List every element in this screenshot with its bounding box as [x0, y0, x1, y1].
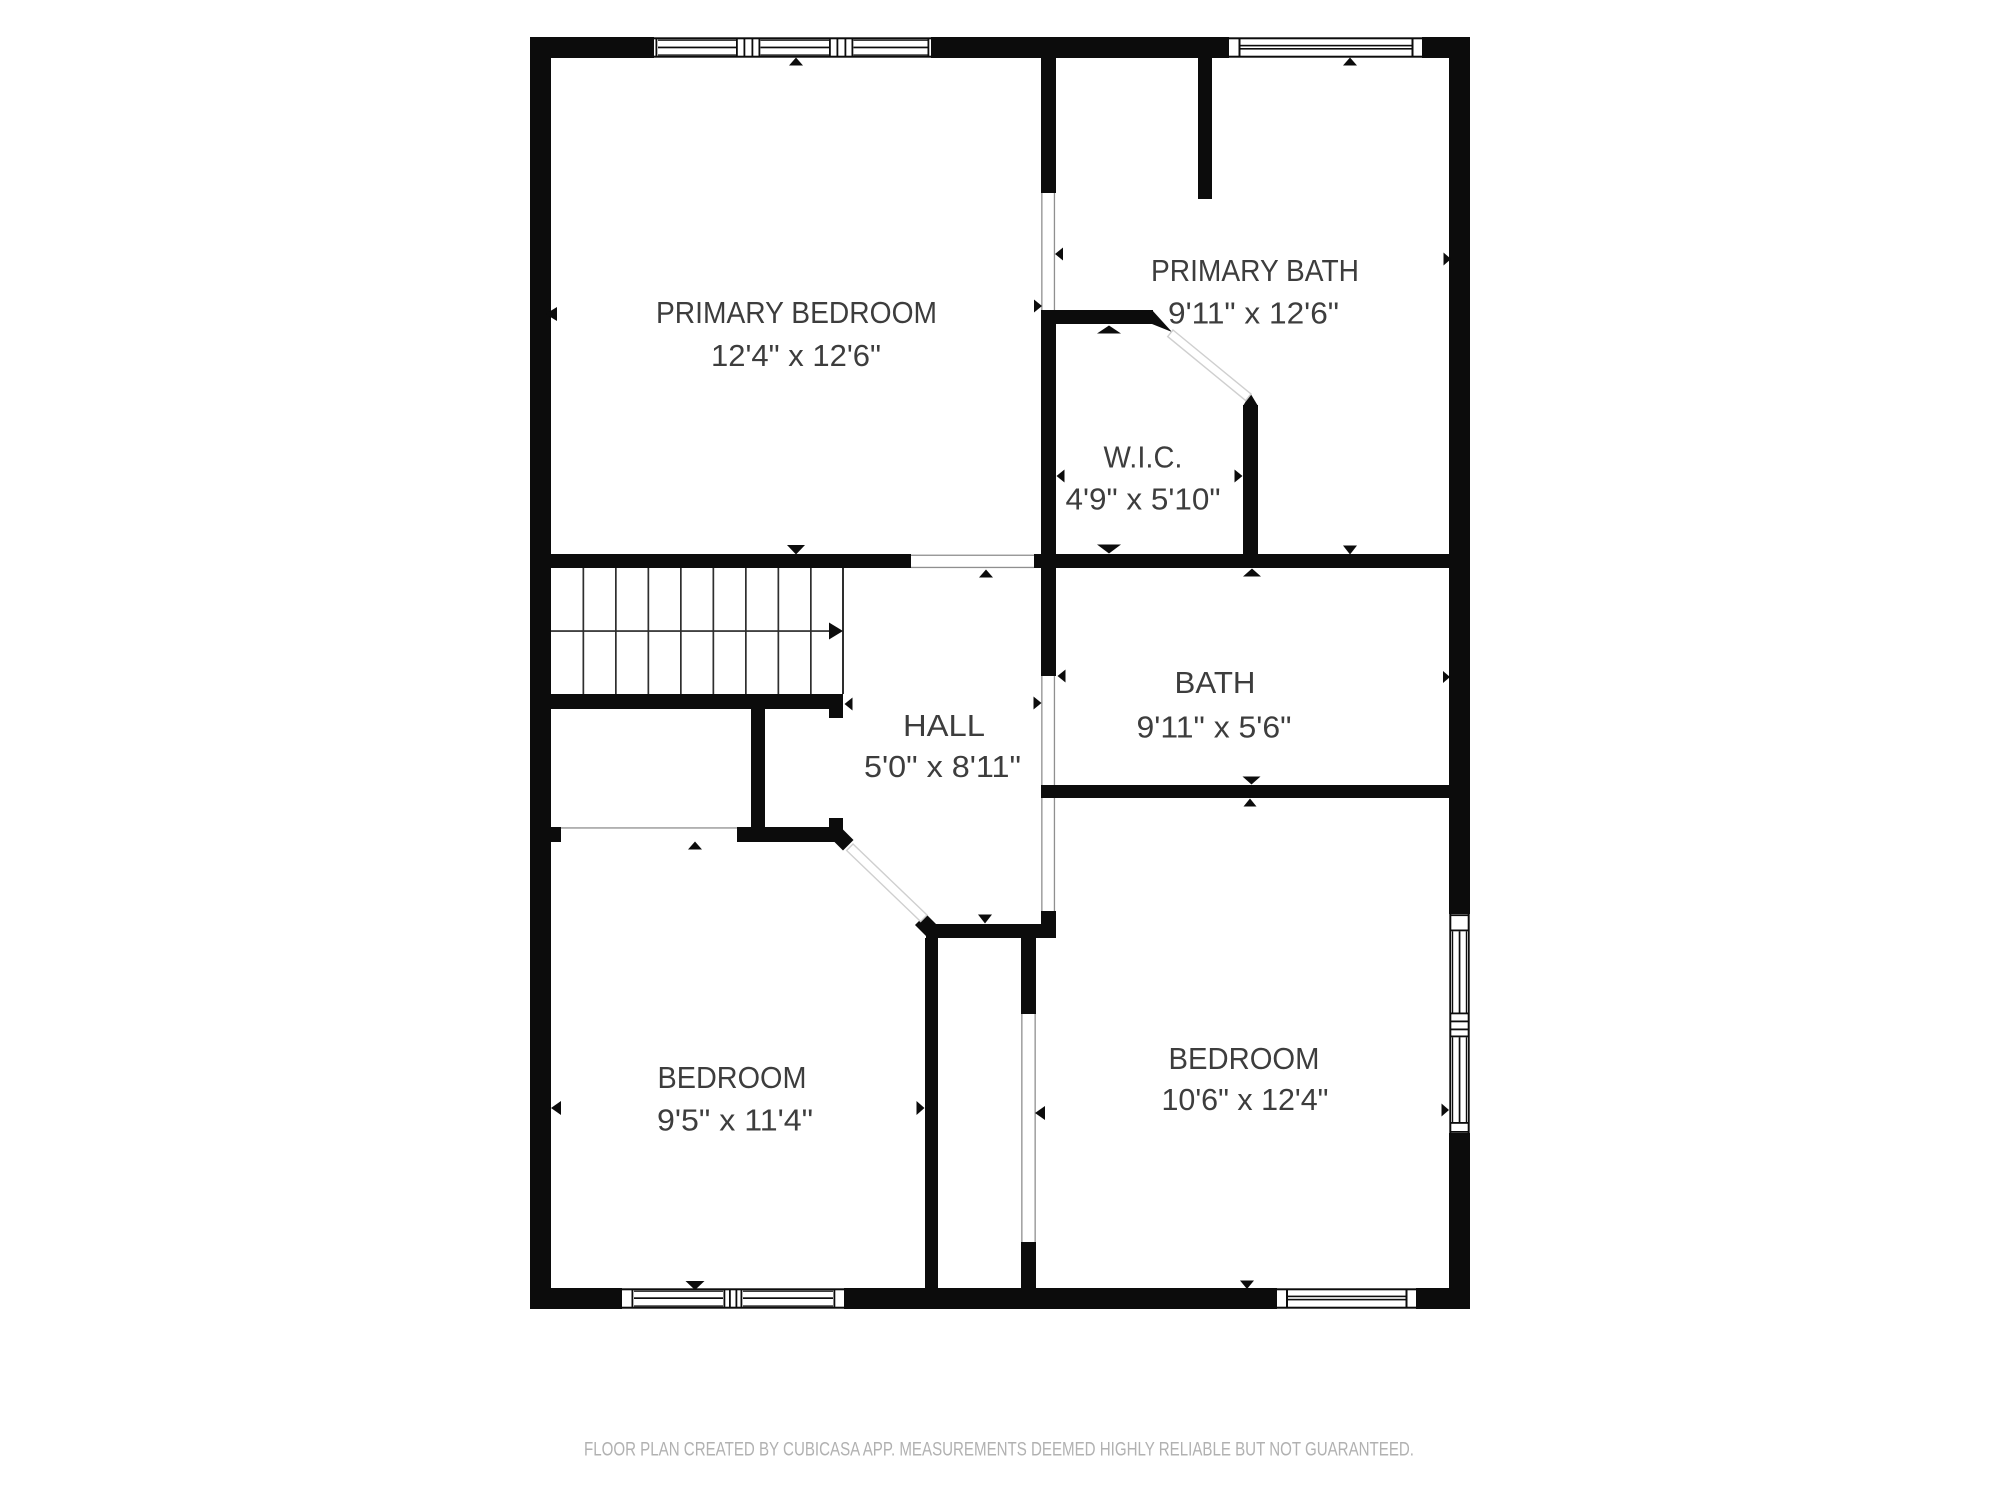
svg-text:BATH: BATH — [1175, 666, 1256, 700]
svg-text:FLOOR PLAN CREATED BY CUBICASA: FLOOR PLAN CREATED BY CUBICASA APP. MEAS… — [584, 1440, 1414, 1461]
svg-text:PRIMARY BATH: PRIMARY BATH — [1151, 254, 1359, 288]
svg-text:9'11" x 12'6": 9'11" x 12'6" — [1168, 297, 1339, 331]
svg-text:9'5" x 11'4": 9'5" x 11'4" — [657, 1104, 813, 1138]
svg-text:PRIMARY BEDROOM: PRIMARY BEDROOM — [656, 296, 937, 330]
svg-text:9'11" x 5'6": 9'11" x 5'6" — [1137, 711, 1292, 745]
svg-text:HALL: HALL — [903, 709, 985, 743]
svg-text:5'0" x 8'11": 5'0" x 8'11" — [864, 750, 1021, 784]
svg-text:BEDROOM: BEDROOM — [1169, 1042, 1320, 1076]
svg-text:10'6" x 12'4": 10'6" x 12'4" — [1162, 1083, 1329, 1117]
svg-text:W.I.C.: W.I.C. — [1104, 441, 1183, 475]
svg-text:BEDROOM: BEDROOM — [658, 1061, 807, 1095]
svg-text:4'9" x 5'10": 4'9" x 5'10" — [1066, 483, 1221, 517]
svg-text:12'4" x 12'6": 12'4" x 12'6" — [711, 339, 881, 373]
